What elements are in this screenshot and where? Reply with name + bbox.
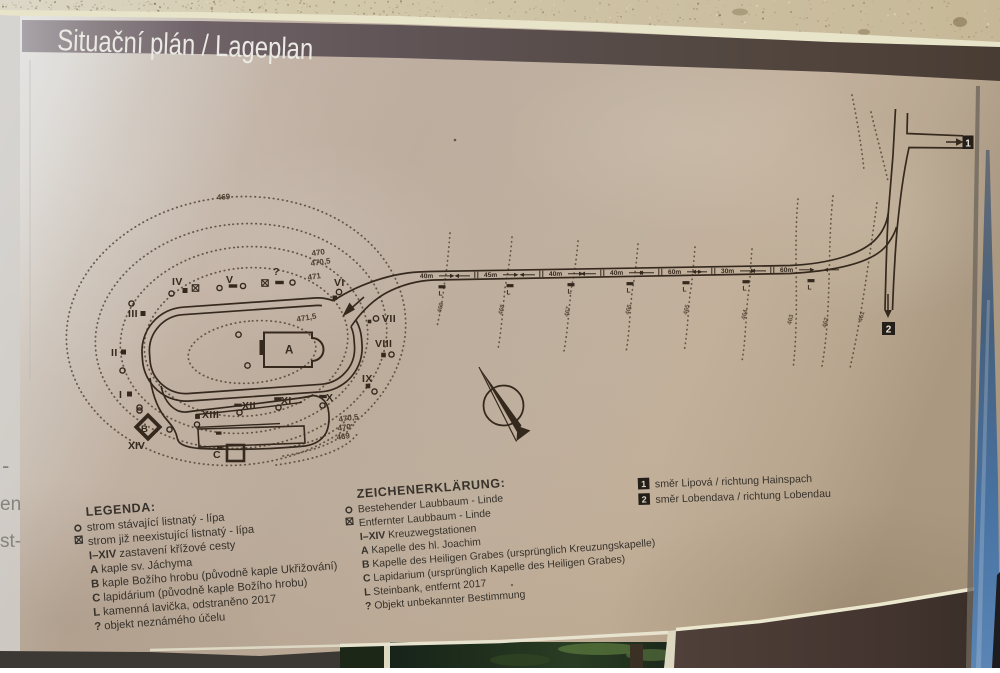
- svg-text:30m: 30m: [721, 268, 734, 275]
- svg-text:VIII: VIII: [375, 338, 392, 350]
- svg-text:C: C: [213, 449, 221, 461]
- svg-text:1: 1: [641, 479, 646, 489]
- svg-text:471: 471: [307, 271, 322, 282]
- svg-text:L: L: [683, 287, 687, 294]
- svg-text:V: V: [226, 274, 233, 286]
- svg-text:469: 469: [336, 431, 351, 442]
- svg-text:60m: 60m: [668, 269, 681, 276]
- svg-text:L: L: [439, 291, 443, 298]
- svg-text:III: III: [128, 308, 138, 320]
- svg-text:st-: st-: [0, 531, 21, 552]
- svg-text:40m: 40m: [549, 271, 562, 278]
- svg-text:469: 469: [217, 192, 231, 202]
- svg-text:40m: 40m: [420, 273, 433, 280]
- svg-text:A: A: [285, 345, 293, 357]
- svg-text:60m: 60m: [780, 267, 793, 274]
- svg-text:VI: VI: [334, 277, 345, 289]
- svg-text:L: L: [507, 290, 511, 297]
- svg-text:45m: 45m: [484, 272, 497, 279]
- svg-text:B: B: [141, 424, 148, 435]
- svg-text:en: en: [0, 494, 21, 515]
- svg-text:II: II: [111, 347, 118, 359]
- svg-text:IX: IX: [362, 373, 373, 385]
- svg-text:XII: XII: [242, 400, 256, 412]
- svg-text:XIV: XIV: [128, 440, 145, 452]
- svg-text:IV: IV: [172, 276, 183, 288]
- svg-text:XI: XI: [281, 395, 292, 407]
- svg-text:XIII: XIII: [202, 409, 219, 421]
- svg-text:40m: 40m: [610, 270, 623, 277]
- svg-text:L: L: [627, 288, 631, 295]
- svg-text:L: L: [743, 286, 747, 293]
- svg-text:L: L: [808, 285, 812, 292]
- svg-text:2: 2: [886, 325, 892, 336]
- svg-text:2: 2: [641, 495, 646, 505]
- svg-text:I: I: [119, 389, 122, 401]
- svg-text:-: -: [2, 453, 9, 478]
- svg-text:1: 1: [965, 138, 971, 149]
- svg-text:VII: VII: [382, 313, 396, 325]
- svg-text:?: ?: [273, 266, 279, 278]
- svg-text:L: L: [568, 289, 572, 296]
- svg-text:X: X: [326, 392, 333, 404]
